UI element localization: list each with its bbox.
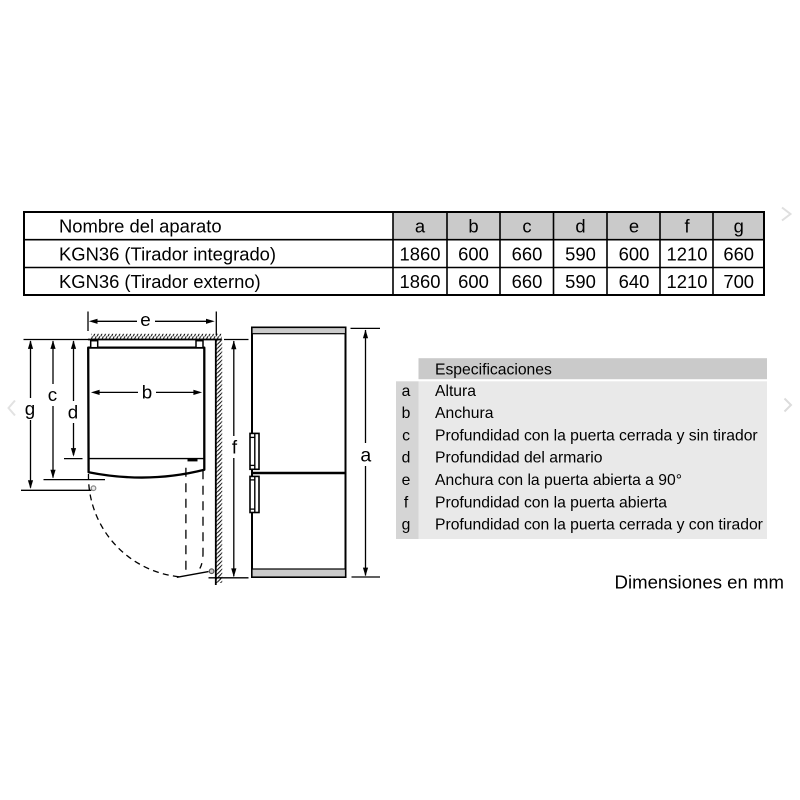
- svg-text:600: 600: [458, 271, 489, 292]
- svg-text:600: 600: [619, 244, 650, 265]
- svg-text:1860: 1860: [400, 244, 441, 265]
- svg-text:f: f: [404, 494, 409, 511]
- svg-text:Anchura con la puerta abierta: Anchura con la puerta abierta a 90°: [435, 472, 682, 489]
- svg-text:b: b: [402, 405, 411, 422]
- svg-text:f: f: [232, 437, 238, 458]
- svg-text:b: b: [468, 215, 478, 236]
- svg-text:b: b: [142, 382, 152, 403]
- svg-text:660: 660: [512, 244, 543, 265]
- svg-text:a: a: [360, 444, 371, 466]
- svg-text:Anchura: Anchura: [435, 405, 494, 422]
- svg-text:1210: 1210: [667, 271, 708, 292]
- svg-text:c: c: [402, 427, 410, 444]
- svg-text:e: e: [402, 472, 411, 489]
- svg-text:Nombre del aparato: Nombre del aparato: [59, 215, 222, 236]
- svg-text:g: g: [734, 215, 744, 236]
- svg-text:g: g: [25, 398, 35, 419]
- svg-text:590: 590: [565, 271, 596, 292]
- svg-text:1860: 1860: [400, 271, 441, 292]
- svg-text:d: d: [68, 401, 78, 422]
- svg-text:Profundidad con la puerta cerr: Profundidad con la puerta cerrada y con …: [435, 517, 763, 534]
- svg-text:c: c: [522, 215, 531, 236]
- svg-text:c: c: [48, 384, 57, 405]
- svg-text:600: 600: [458, 244, 489, 265]
- svg-text:660: 660: [723, 244, 754, 265]
- svg-text:660: 660: [512, 271, 543, 292]
- svg-text:Profundidad con la puerta abie: Profundidad con la puerta abierta: [435, 494, 667, 511]
- svg-text:Altura: Altura: [435, 383, 476, 400]
- svg-text:KGN36 (Tirador externo): KGN36 (Tirador externo): [59, 271, 261, 292]
- svg-text:640: 640: [619, 271, 650, 292]
- svg-text:e: e: [629, 215, 639, 236]
- svg-text:700: 700: [723, 271, 754, 292]
- svg-text:a: a: [402, 383, 411, 400]
- svg-text:e: e: [140, 309, 150, 330]
- svg-text:590: 590: [565, 244, 596, 265]
- svg-text:Dimensiones en mm: Dimensiones en mm: [615, 572, 784, 593]
- svg-text:d: d: [402, 450, 411, 467]
- svg-text:1210: 1210: [667, 244, 708, 265]
- svg-text:a: a: [415, 215, 426, 236]
- svg-text:f: f: [684, 215, 690, 236]
- svg-text:g: g: [402, 517, 411, 534]
- svg-text:Profundidad del armario: Profundidad del armario: [435, 450, 603, 467]
- svg-text:KGN36 (Tirador integrado): KGN36 (Tirador integrado): [59, 244, 276, 265]
- svg-text:Profundidad con la puerta cerr: Profundidad con la puerta cerrada y sin …: [435, 427, 758, 444]
- svg-text:d: d: [575, 215, 585, 236]
- svg-text:Especificaciones: Especificaciones: [435, 362, 552, 379]
